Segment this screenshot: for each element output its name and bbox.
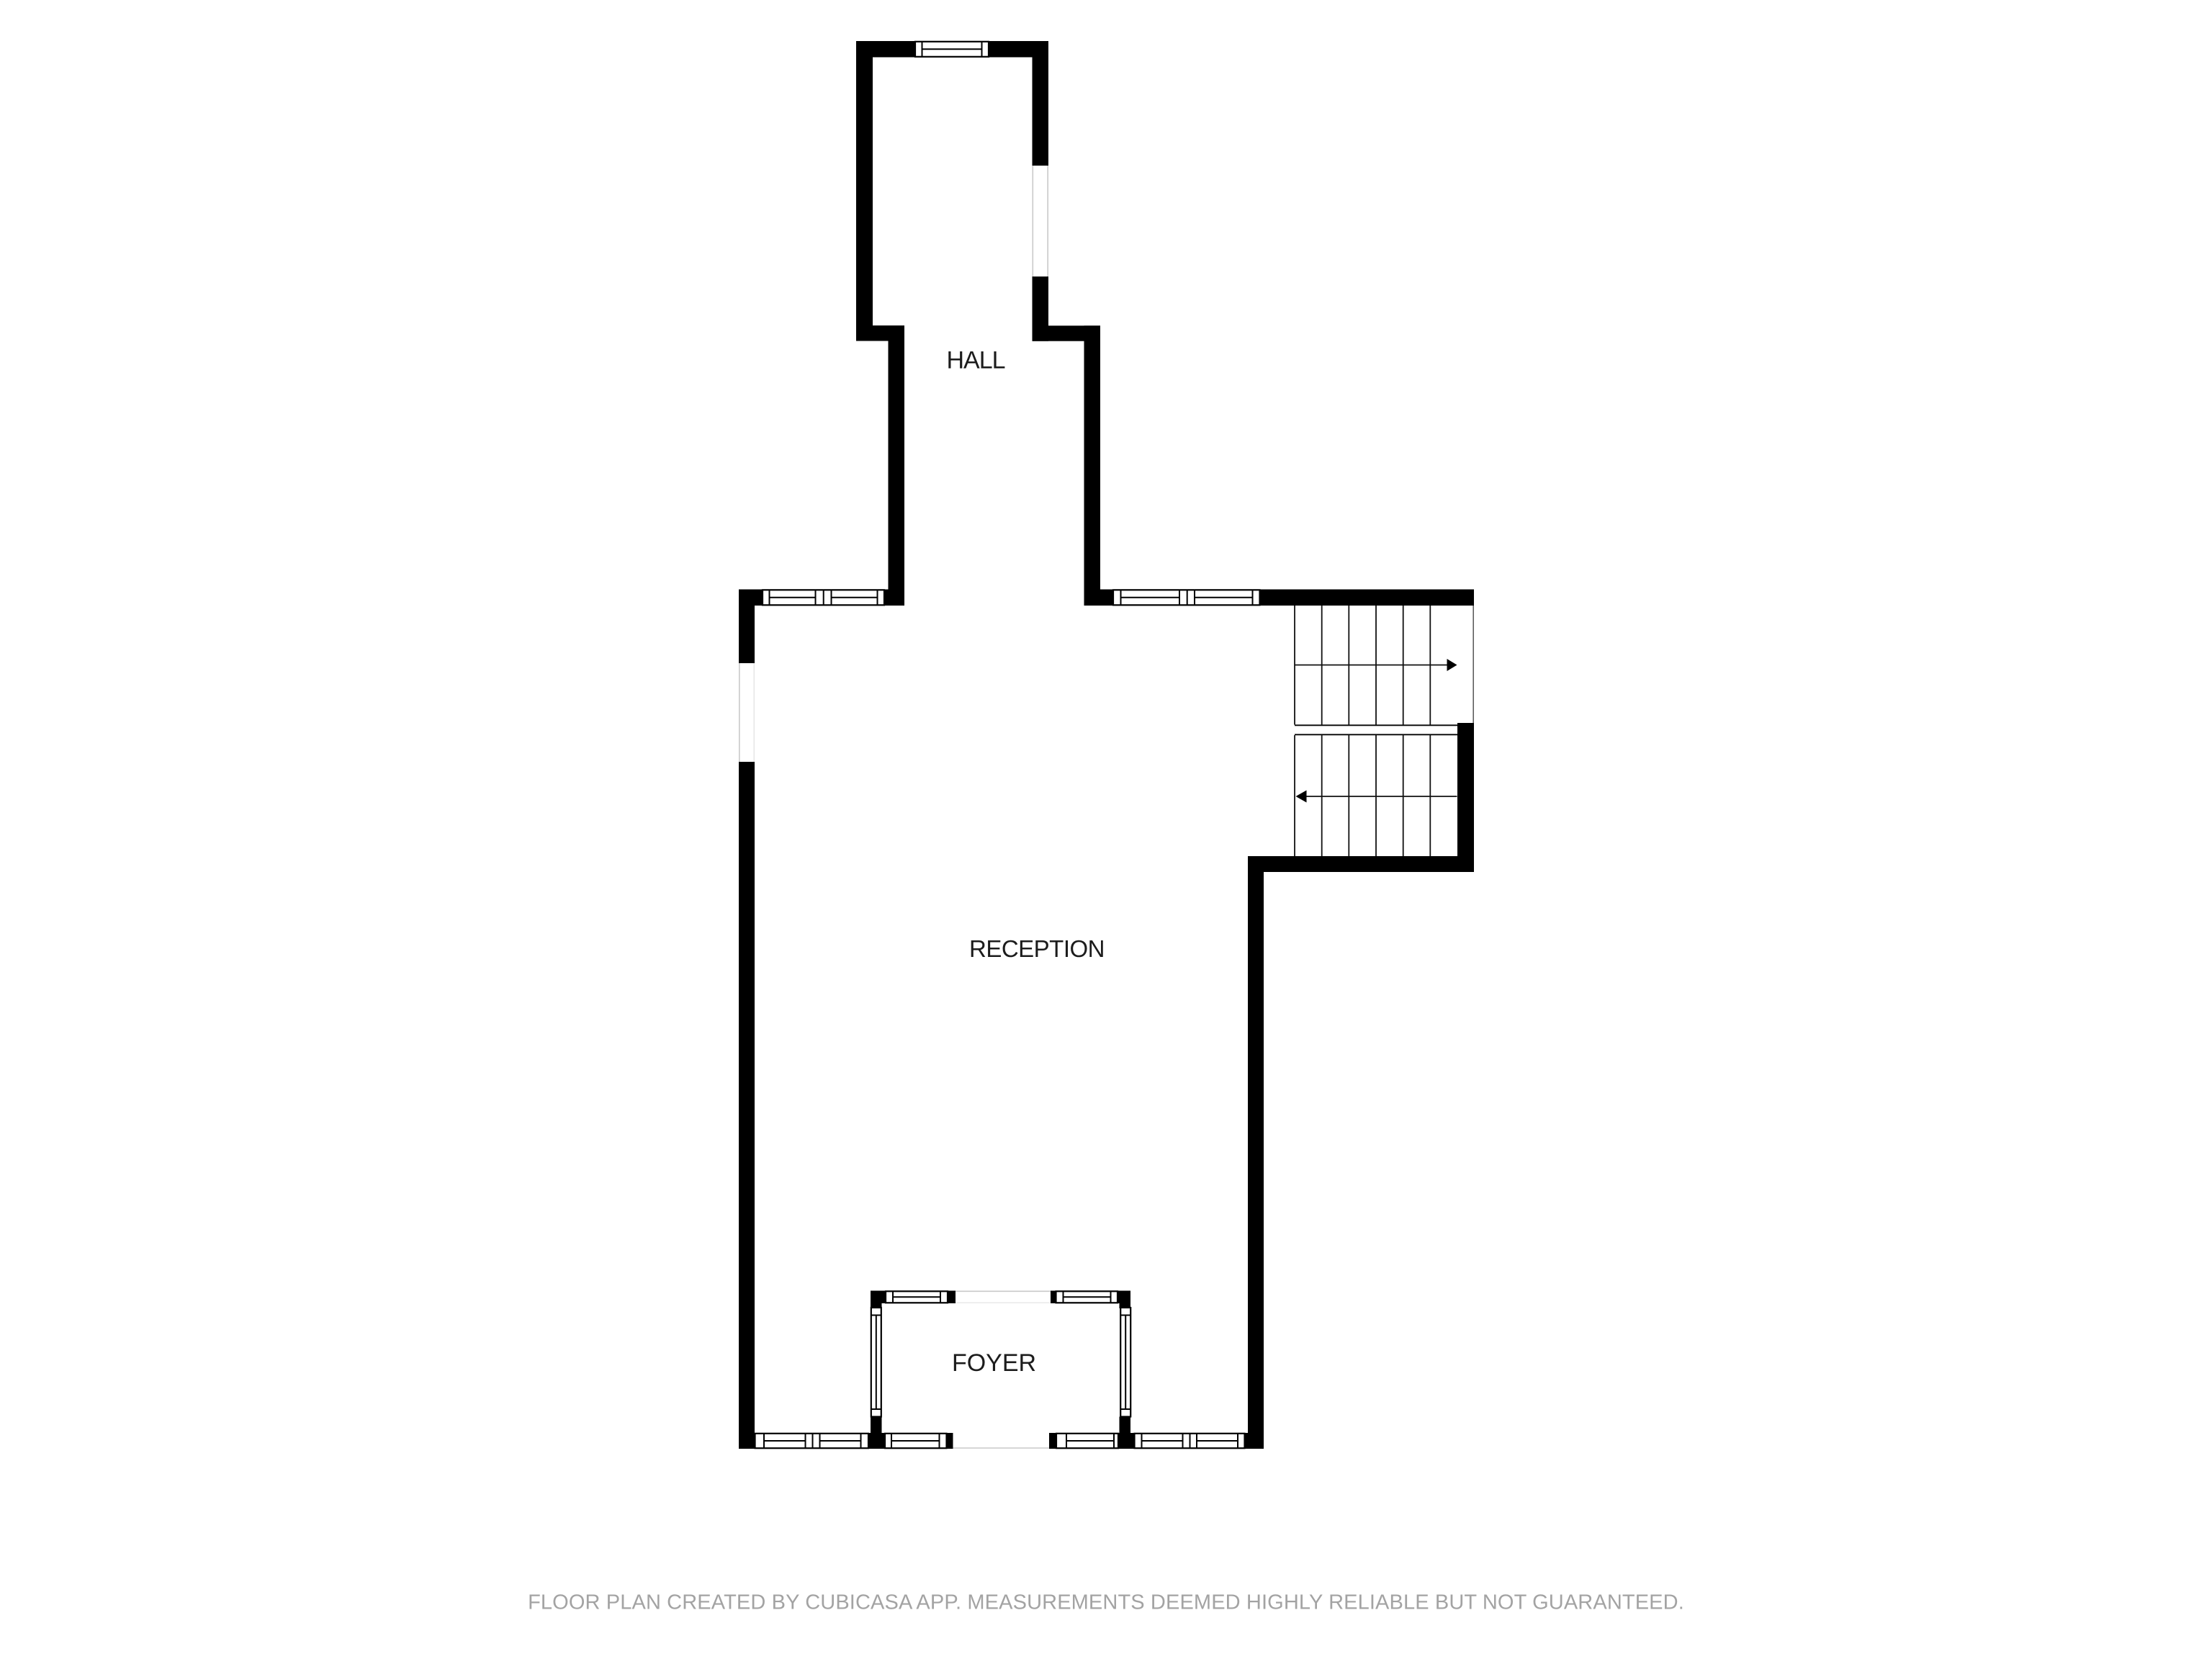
- svg-text:HALL: HALL: [946, 347, 1004, 374]
- svg-text:FOYER: FOYER: [952, 1349, 1036, 1377]
- svg-text:FLOOR PLAN CREATED BY CUBICASA: FLOOR PLAN CREATED BY CUBICASA APP. MEAS…: [528, 1591, 1684, 1614]
- svg-text:RECEPTION: RECEPTION: [969, 935, 1105, 962]
